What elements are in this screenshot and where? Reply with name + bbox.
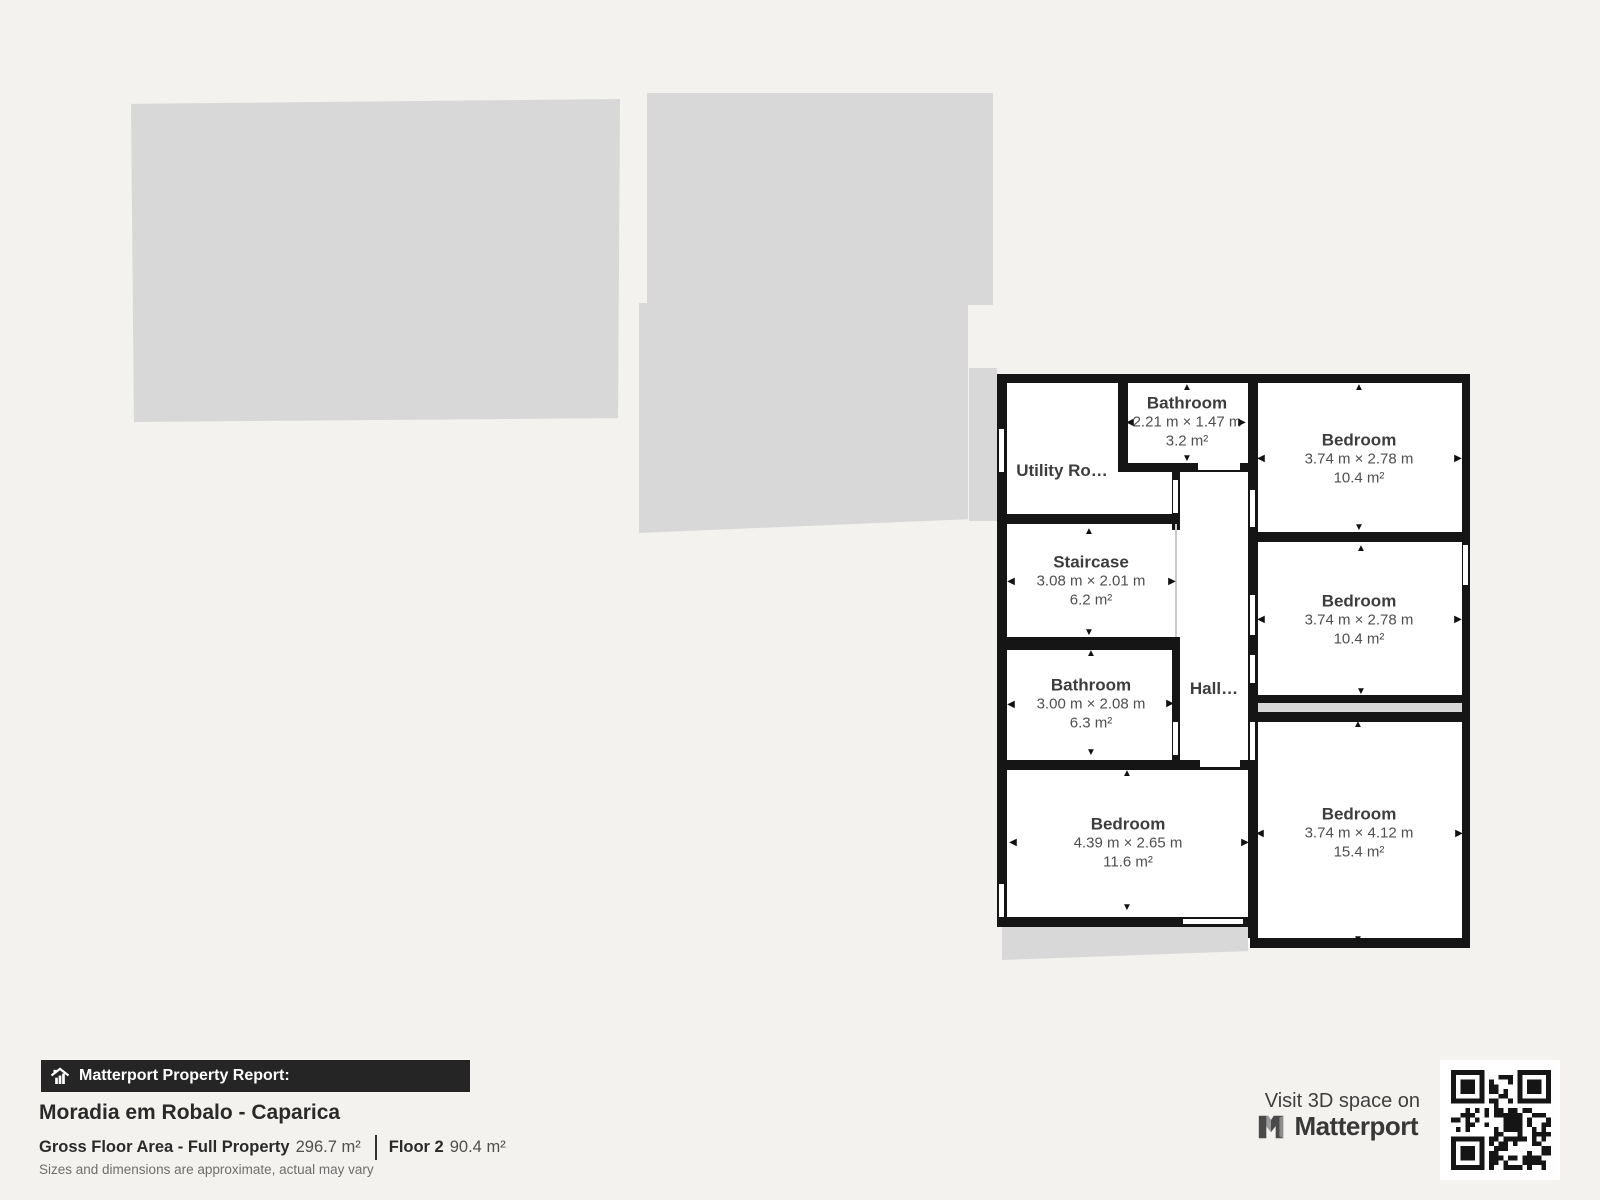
room-area: 3.2 m² (1133, 432, 1242, 451)
room-label: Bathroom2.21 m × 1.47 m3.2 m² (1133, 394, 1242, 451)
dimension-arrow-right: ▶ (1241, 838, 1249, 848)
dimension-arrow-up: ▲ (1353, 720, 1363, 730)
dimension-arrow-left: ◀ (1257, 454, 1265, 464)
door-opening (1250, 655, 1255, 683)
matterport-wordmark: Matterport (1294, 1111, 1418, 1142)
room-label: Bathroom3.00 m × 2.08 m6.3 m² (1037, 676, 1146, 733)
wall (997, 514, 1180, 524)
matterport-brand: Matterport (1256, 1111, 1418, 1142)
room-label: Bedroom3.74 m × 2.78 m10.4 m² (1305, 431, 1414, 488)
room-label: Bedroom3.74 m × 4.12 m15.4 m² (1305, 805, 1414, 862)
disclaimer-text: Sizes and dimensions are approximate, ac… (39, 1162, 374, 1177)
door-opening (1250, 490, 1255, 527)
floor-label: Floor 2 (389, 1138, 444, 1157)
window-opening (999, 429, 1004, 472)
wall (997, 374, 1470, 383)
dimension-arrow-down: ▼ (1354, 523, 1364, 533)
floorplan: Bathroom2.21 m × 1.47 m3.2 m²▲▼◀▶Bedroom… (0, 0, 1600, 1200)
room-name: Bedroom (1305, 431, 1414, 450)
dimension-arrow-up: ▲ (1122, 769, 1132, 779)
room-name: Bedroom (1305, 805, 1414, 824)
other-floor-strip-between-bedrooms (1258, 703, 1468, 712)
floor-value: 90.4 m² (450, 1138, 506, 1157)
room-area: 15.4 m² (1305, 843, 1414, 862)
room-dimensions: 3.74 m × 2.78 m (1305, 611, 1414, 630)
report-badge-bar: Matterport Property Report: (41, 1060, 470, 1092)
room-name: Bedroom (1074, 815, 1183, 834)
dimension-arrow-left: ◀ (1257, 615, 1265, 625)
dimension-arrow-left: ◀ (1126, 418, 1134, 428)
dimension-arrow-right: ▶ (1166, 699, 1174, 709)
dimension-arrow-right: ▶ (1455, 829, 1463, 839)
dimension-arrow-up: ▲ (1182, 383, 1192, 393)
dimension-arrow-left: ◀ (1007, 700, 1015, 710)
dimension-arrow-up: ▲ (1354, 383, 1364, 393)
window-opening (1183, 919, 1243, 924)
dimension-arrow-right: ▶ (1168, 577, 1176, 587)
dimension-arrow-down: ▼ (1182, 454, 1192, 464)
room-label: Bedroom4.39 m × 2.65 m11.6 m² (1074, 815, 1183, 872)
room-area: 10.4 m² (1305, 630, 1414, 649)
room-label: Staircase3.08 m × 2.01 m6.2 m² (1037, 553, 1146, 610)
dimension-arrow-left: ◀ (1007, 577, 1015, 587)
room-name: Staircase (1037, 553, 1146, 572)
utility-room-label: Utility Ro… (1016, 461, 1108, 481)
dimension-arrow-left: ◀ (1009, 838, 1017, 848)
dimension-arrow-right: ▶ (1454, 454, 1462, 464)
wall (1462, 374, 1470, 948)
room-dimensions: 3.00 m × 2.08 m (1037, 695, 1146, 714)
dimension-arrow-down: ▼ (1084, 628, 1094, 638)
room-area: 10.4 m² (1305, 469, 1414, 488)
gfa-label: Gross Floor Area - Full Property (39, 1138, 290, 1157)
room-dimensions: 3.08 m × 2.01 m (1037, 572, 1146, 591)
house-report-icon (50, 1066, 70, 1086)
other-floor-fragment-below-bedroom (1002, 926, 1248, 960)
door-opening (1250, 595, 1255, 635)
window-opening (1463, 545, 1468, 585)
hall-label: Hall… (1190, 679, 1238, 699)
report-badge-label: Matterport Property Report: (79, 1067, 290, 1085)
dimension-arrow-down: ▼ (1356, 687, 1366, 697)
window-opening (999, 884, 1004, 917)
visit-3d-space-text: Visit 3D space on (1265, 1090, 1420, 1113)
room-area: 11.6 m² (1074, 853, 1183, 872)
door-opening (1200, 760, 1240, 767)
dimension-arrow-right: ▶ (1238, 418, 1246, 428)
room-label: Bedroom3.74 m × 2.78 m10.4 m² (1305, 592, 1414, 649)
door-opening (1250, 722, 1255, 760)
divider (375, 1135, 377, 1160)
dimension-arrow-down: ▼ (1353, 935, 1363, 945)
dimension-arrow-up: ▲ (1086, 649, 1096, 659)
dimension-arrow-right: ▶ (1454, 615, 1462, 625)
dimension-arrow-down: ▼ (1122, 903, 1132, 913)
door-opening (1198, 463, 1240, 470)
room-dimensions: 2.21 m × 1.47 m (1133, 413, 1242, 432)
room-name: Bedroom (1305, 592, 1414, 611)
wall (1248, 532, 1470, 542)
room-name: Bathroom (1037, 676, 1146, 695)
qr-code (1440, 1060, 1560, 1180)
door-opening (1173, 480, 1178, 513)
dimension-arrow-down: ▼ (1086, 748, 1096, 758)
dimension-arrow-up: ▲ (1356, 544, 1366, 554)
dimension-arrow-up: ▲ (1084, 527, 1094, 537)
gfa-value: 296.7 m² (296, 1138, 361, 1157)
room-name: Bathroom (1133, 394, 1242, 413)
dimension-arrow-left: ◀ (1256, 829, 1264, 839)
room-area: 6.3 m² (1037, 714, 1146, 733)
property-title: Moradia em Robalo - Caparica (39, 1101, 340, 1125)
door-opening (1173, 722, 1178, 755)
matterport-logo-icon (1256, 1112, 1286, 1142)
room-area: 6.2 m² (1037, 591, 1146, 610)
room-dimensions: 4.39 m × 2.65 m (1074, 834, 1183, 853)
floor-area-line: Gross Floor Area - Full Property 296.7 m… (39, 1135, 506, 1160)
room-dimensions: 3.74 m × 2.78 m (1305, 450, 1414, 469)
room-dimensions: 3.74 m × 4.12 m (1305, 824, 1414, 843)
